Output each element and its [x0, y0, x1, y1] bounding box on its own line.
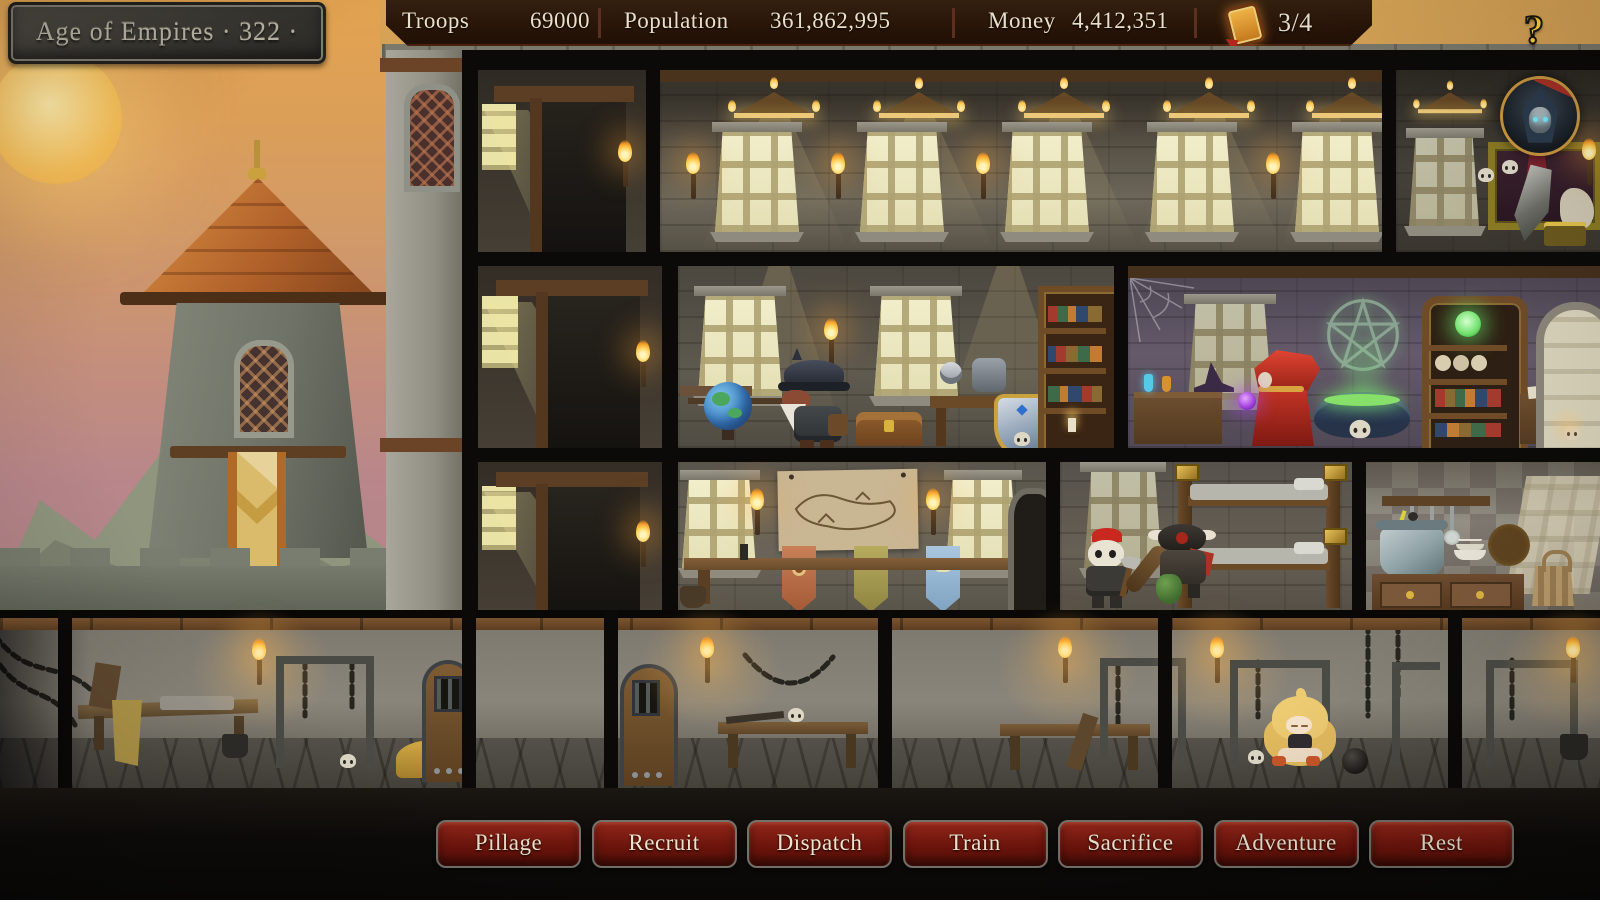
cooking-pot [1380, 528, 1444, 576]
girl-hair-back [1264, 714, 1336, 766]
girl-legs [1278, 748, 1322, 762]
war-doorway [1008, 488, 1046, 612]
rack-leg [94, 716, 104, 750]
girl-closed-eyes [1291, 725, 1298, 727]
cell-divider [604, 610, 618, 788]
wall-torch [686, 160, 700, 200]
money-label: Money [988, 8, 1056, 34]
dungeon-left-shadow [0, 630, 90, 788]
doorway-dark [546, 296, 640, 448]
hall-window [860, 132, 944, 232]
armor-helmet [940, 362, 962, 384]
character-skull-raider[interactable] [1078, 530, 1136, 610]
chandelier [1165, 86, 1253, 122]
action-button-rest[interactable]: Rest [1369, 820, 1514, 868]
room-great-hall[interactable] [660, 70, 1382, 252]
action-button-adventure[interactable]: Adventure [1214, 820, 1359, 868]
magic-orb [1238, 392, 1256, 410]
chandelier [1020, 86, 1108, 122]
stair-window [482, 486, 516, 550]
lich-eye [1533, 117, 1538, 122]
dungeon-torch [1210, 644, 1224, 684]
candlestick [740, 544, 748, 560]
banner-highlight [237, 452, 277, 488]
bar-divider [1194, 8, 1197, 38]
wall-torch [750, 496, 764, 536]
wall-torch [636, 528, 650, 568]
window-lintel [1406, 128, 1484, 138]
candle-glow [1548, 406, 1588, 446]
window-sill [710, 232, 804, 242]
wall-torch [618, 148, 632, 188]
basket-handle [1542, 550, 1572, 572]
shelf-line [1044, 328, 1106, 334]
girl-hair [1272, 696, 1328, 740]
window-lintel [694, 286, 786, 296]
bowls-stack [1454, 550, 1486, 560]
hay-pile [396, 740, 470, 778]
wall-torch [1582, 146, 1596, 186]
dungeon-torch [1566, 644, 1580, 684]
counter-drawers [1372, 574, 1524, 612]
banner-hammer [854, 546, 888, 612]
girl-ahoge [1295, 687, 1308, 701]
action-button-pillage[interactable]: Pillage [436, 820, 581, 868]
bucket [1560, 734, 1588, 760]
game-stage: Pillage Recruit Dispatch Train Sacrifice… [0, 0, 1600, 900]
wall-torch [831, 160, 845, 200]
dungeon-torch [252, 646, 266, 686]
gold-cap [1175, 464, 1199, 481]
potion-blue [1144, 374, 1153, 392]
quest-counter[interactable]: 3/4 [1278, 8, 1313, 38]
skull [1014, 432, 1030, 446]
shelf-line [1044, 408, 1106, 414]
rack-cloth [112, 700, 142, 766]
dungeon-table [718, 722, 868, 772]
orc-satchel [828, 414, 848, 436]
tower-eave [120, 292, 396, 305]
quest-scroll-icon[interactable] [1224, 1, 1267, 48]
character-red-mage[interactable] [1244, 350, 1320, 446]
altar-window [1409, 138, 1479, 226]
orc-boots [800, 440, 814, 448]
torture-frame [1230, 660, 1330, 768]
rack-blanket [160, 696, 234, 710]
window-sill [1404, 226, 1486, 236]
globe [704, 382, 752, 430]
door-post [536, 484, 548, 612]
globe-land [728, 408, 742, 418]
banner-book [926, 546, 960, 612]
shield-gem [1016, 404, 1027, 415]
hall-window [1150, 132, 1234, 232]
chandelier [1415, 88, 1485, 117]
banner-swords [782, 546, 816, 612]
strainer [1450, 506, 1454, 532]
door-post [530, 98, 542, 252]
window-sill [855, 232, 949, 242]
bar-divider [598, 8, 601, 38]
title-plaque: Age of Empires · 322 · [8, 2, 326, 64]
skull [1248, 750, 1264, 764]
cell-divider [1448, 610, 1462, 788]
hall-window [715, 132, 799, 232]
window-sill [1145, 232, 1239, 242]
wall-torch [976, 160, 990, 200]
room-kitchen[interactable] [1366, 462, 1600, 612]
helmet-emblem [1176, 532, 1188, 544]
bar-divider [952, 8, 955, 38]
plaque-text: Age of Empires · 322 · [11, 5, 323, 59]
window-lintel [1080, 462, 1166, 472]
orc-helmet-spike [792, 348, 802, 360]
desk-leg [936, 408, 946, 446]
action-button-sacrifice[interactable]: Sacrifice [1058, 820, 1203, 868]
gold-chest [1544, 222, 1586, 246]
room-study[interactable] [678, 266, 1114, 448]
glowing-orb [1455, 311, 1481, 337]
window-sill [1000, 232, 1094, 242]
chandelier [1308, 86, 1382, 122]
scrolls [1435, 355, 1451, 371]
dungeon-torch [700, 644, 714, 684]
character-orc-scholar[interactable] [774, 352, 858, 448]
dungeon-chains [0, 630, 1600, 788]
armor-torso [972, 358, 1006, 392]
drawer [1450, 582, 1512, 608]
map-canvas [777, 469, 918, 551]
lab-desk [1134, 392, 1222, 444]
rack-headboard [89, 662, 122, 710]
dungeon[interactable] [0, 630, 1600, 788]
war-table [684, 558, 1028, 570]
room-stairwell-2[interactable] [478, 266, 662, 448]
ceiling-beam [660, 70, 1382, 82]
window-lintel [1002, 122, 1092, 132]
skull [1502, 160, 1518, 174]
dungeon-floor [0, 738, 1600, 788]
window-lintel [1184, 294, 1276, 304]
lich-portrait[interactable] [1500, 76, 1580, 156]
spiderweb [1130, 278, 1196, 344]
room-alchemy-lab[interactable] [1128, 266, 1600, 448]
shelf-line [1429, 413, 1507, 419]
troops-label: Troops [402, 8, 469, 34]
girl-face [1286, 716, 1312, 734]
room-dark-altar[interactable] [1396, 70, 1600, 252]
cell-door [422, 660, 474, 782]
window-lintel [944, 470, 1022, 480]
spiked-club [726, 711, 784, 724]
prison-rack [78, 699, 258, 719]
drawer-knob [1476, 591, 1484, 599]
drawer [1380, 582, 1442, 608]
hall-window [1005, 132, 1089, 232]
potion-amber [1162, 376, 1171, 392]
chest-clasp [884, 420, 894, 432]
iron-ball [1342, 748, 1368, 774]
leaning-plank [1066, 713, 1099, 771]
resource-bar: Troops 69000 Population 361,862,995 Mone… [386, 0, 1372, 46]
stair-window [482, 104, 516, 170]
pot-knob [1408, 512, 1418, 521]
stair-window [482, 296, 518, 368]
drawer-knob [1406, 591, 1414, 599]
population-label: Population [624, 8, 729, 34]
basket [1532, 566, 1574, 606]
ceiling-beam [1128, 266, 1600, 278]
pillow [1294, 542, 1324, 554]
raider-legs [1092, 596, 1104, 608]
pillow [1294, 478, 1324, 490]
help-button[interactable]: ? [1524, 10, 1544, 50]
books-row [1435, 423, 1501, 437]
dungeon-table [1000, 724, 1150, 774]
tower-finial-knob [248, 168, 266, 180]
bucket [222, 734, 248, 758]
character-prisoner-girl[interactable] [1262, 696, 1340, 780]
room-war-room[interactable] [678, 462, 1046, 612]
action-bar: Pillage Recruit Dispatch Train Sacrifice… [436, 820, 1514, 866]
map-drawing [777, 469, 918, 551]
tower-roof [138, 178, 378, 298]
question-mark-icon: ? [1524, 7, 1544, 52]
books-row [1048, 346, 1102, 362]
mage-robe [1252, 390, 1314, 446]
tower-banner [228, 452, 286, 590]
action-button-dispatch[interactable]: Dispatch [747, 820, 892, 868]
raider-skull-mask [1088, 540, 1124, 568]
torture-frame [1100, 658, 1186, 766]
kitchen-shelf [1382, 496, 1490, 506]
brute-helmet [1158, 524, 1206, 550]
dungeon-torch [1058, 644, 1072, 684]
window-lintel [680, 470, 760, 480]
window-lintel [712, 122, 802, 132]
cell-divider [878, 610, 892, 788]
door-lintel [496, 280, 648, 296]
skull [1478, 168, 1494, 182]
study-window [698, 296, 782, 396]
cell-door [620, 664, 678, 786]
girl-shoes [1272, 756, 1286, 766]
dungeon-walkway [0, 618, 1600, 630]
room-stairwell-3[interactable] [478, 462, 662, 612]
wall-torch [636, 348, 650, 388]
hall-window [1295, 132, 1379, 232]
girl-torso [1288, 734, 1312, 750]
cell-divider [1158, 610, 1172, 788]
skull [788, 708, 804, 722]
shelf-line [1044, 368, 1106, 374]
door-lintel [494, 86, 634, 102]
skull [340, 754, 356, 768]
cauldron-brew [1324, 394, 1400, 406]
books-row [1048, 306, 1102, 322]
wall-torch [1266, 160, 1280, 200]
strainer-head [1444, 530, 1460, 545]
torture-frame [1486, 660, 1578, 768]
population-value: 361,862,995 [770, 8, 891, 34]
action-button-train[interactable]: Train [903, 820, 1048, 868]
tower-window [234, 340, 294, 438]
wall-torch [926, 496, 940, 536]
battlement-merlons [0, 548, 470, 568]
window-lintel [857, 122, 947, 132]
mattress-top [1190, 484, 1328, 500]
shelf-line [1429, 345, 1507, 351]
pot-lid [1376, 520, 1448, 530]
books-row [1048, 386, 1102, 402]
torture-frame [1392, 662, 1440, 766]
window-sill [1290, 232, 1382, 242]
books-row [1435, 389, 1501, 407]
bookshelf [1038, 286, 1114, 448]
door-post [536, 292, 548, 448]
candle [1068, 418, 1076, 432]
doorway-dark [546, 487, 640, 612]
frying-pan [1488, 524, 1530, 566]
gold-cap [1323, 464, 1347, 481]
troops-value: 69000 [530, 8, 590, 34]
shelf-line [1429, 379, 1507, 385]
window-lintel [1147, 122, 1237, 132]
chandelier [875, 86, 963, 122]
room-stairwell-1[interactable] [478, 70, 646, 252]
mage-face [1258, 372, 1272, 388]
window-lintel [870, 286, 962, 296]
chandelier [730, 86, 818, 122]
action-button-recruit[interactable]: Recruit [592, 820, 737, 868]
lab-bookshelf [1422, 296, 1528, 448]
money-value: 4,412,351 [1072, 8, 1169, 34]
torture-frame [276, 656, 374, 768]
skull-with-flask [1350, 420, 1371, 438]
basket [680, 586, 706, 608]
door-lintel [496, 472, 648, 487]
gold-cap [1323, 528, 1347, 545]
doorway-dark [540, 102, 626, 252]
banner-chevron [237, 490, 277, 524]
window-lintel [1292, 122, 1382, 132]
globe-land [712, 392, 730, 406]
mask-eye [1095, 550, 1102, 558]
green-pot [1156, 574, 1182, 604]
room-barracks[interactable] [1060, 462, 1352, 612]
watchtower [140, 140, 380, 570]
treasure-chest [856, 412, 922, 446]
